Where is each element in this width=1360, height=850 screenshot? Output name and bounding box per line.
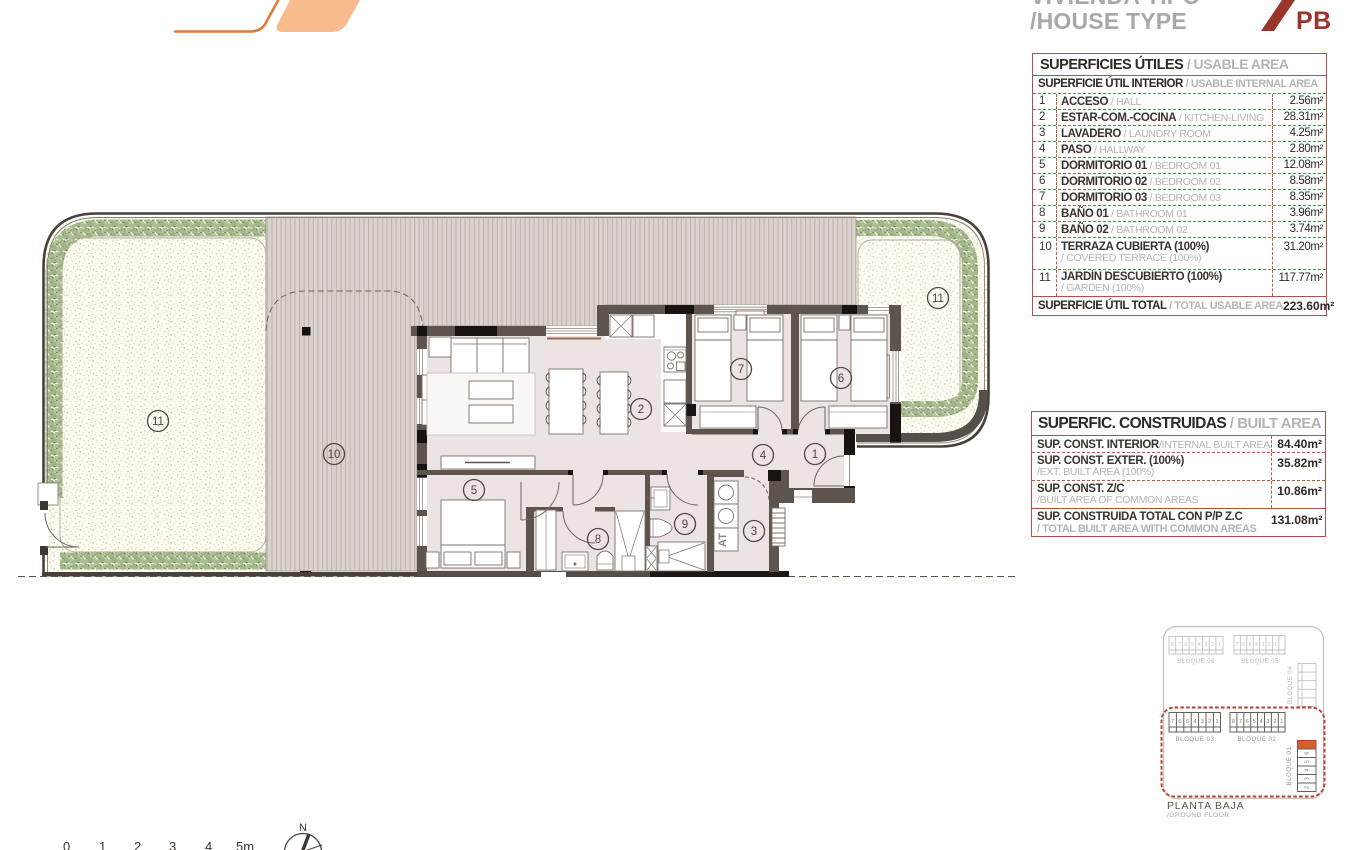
svg-text:3: 3 [1201,719,1204,725]
svg-text:2: 2 [1211,642,1214,648]
svg-text:2: 2 [1305,786,1311,789]
svg-text:2: 2 [1208,719,1211,725]
svg-text:4: 4 [1255,642,1258,648]
svg-text:BLOQUE 01: BLOQUE 01 [1286,747,1293,786]
svg-text:11: 11 [152,416,164,428]
svg-text:1: 1 [812,449,818,461]
svg-text:0: 0 [63,839,70,850]
svg-text:1: 1 [1274,642,1277,648]
svg-text:3: 3 [1305,777,1311,780]
svg-text:4: 4 [1198,642,1201,648]
svg-text:3: 3 [1205,642,1208,648]
svg-text:BLOQUE 04: BLOQUE 04 [1288,666,1294,704]
svg-text:AT: AT [717,533,729,547]
svg-text:5: 5 [1191,642,1194,648]
svg-text:11: 11 [932,293,944,305]
svg-text:6: 6 [838,373,844,385]
svg-text:5: 5 [1249,642,1252,648]
svg-text:2: 2 [1268,642,1271,648]
svg-text:10: 10 [328,449,341,461]
svg-text:5m: 5m [236,839,254,850]
svg-text:1: 1 [1280,719,1283,725]
svg-text:3: 3 [1266,719,1269,725]
svg-text:6: 6 [1184,642,1187,648]
svg-text:3: 3 [1261,642,1264,648]
svg-text:3: 3 [169,839,176,850]
svg-text:1: 1 [1218,642,1221,648]
svg-text:2: 2 [134,839,141,850]
svg-text:BLOQUE 05: BLOQUE 05 [1241,659,1279,665]
svg-text:6: 6 [1178,719,1181,725]
svg-text:2: 2 [1273,719,1276,725]
svg-text:BLOQUE 02: BLOQUE 02 [1238,736,1277,743]
svg-text:7: 7 [1236,642,1239,648]
svg-text:8: 8 [595,534,601,546]
svg-text:2: 2 [638,404,644,416]
svg-text:7: 7 [1239,719,1242,725]
svg-text:N: N [299,822,307,834]
svg-text:5: 5 [1186,719,1189,725]
svg-text:8: 8 [1232,719,1235,725]
svg-text:4: 4 [1305,769,1311,772]
svg-text:6: 6 [1242,642,1245,648]
svg-text:7: 7 [1171,719,1174,725]
svg-text:1: 1 [1215,719,1218,725]
svg-text:BLOQUE 06: BLOQUE 06 [1177,659,1215,665]
svg-text:5: 5 [471,485,477,497]
svg-text:7: 7 [1178,642,1181,648]
svg-text:1: 1 [99,839,106,850]
svg-text:BLOQUE 03: BLOQUE 03 [1176,736,1215,743]
svg-text:4: 4 [1260,719,1263,725]
svg-text:4: 4 [760,450,767,462]
svg-text:4: 4 [205,839,212,850]
svg-text:9: 9 [682,519,688,531]
svg-text:5: 5 [1305,760,1311,763]
svg-text:3: 3 [751,526,757,538]
svg-text:6: 6 [1305,752,1311,755]
svg-text:6: 6 [1246,719,1249,725]
svg-text:7: 7 [738,364,744,376]
svg-text:5: 5 [1253,719,1256,725]
svg-text:8: 8 [1171,642,1174,648]
svg-text:4: 4 [1193,719,1196,725]
